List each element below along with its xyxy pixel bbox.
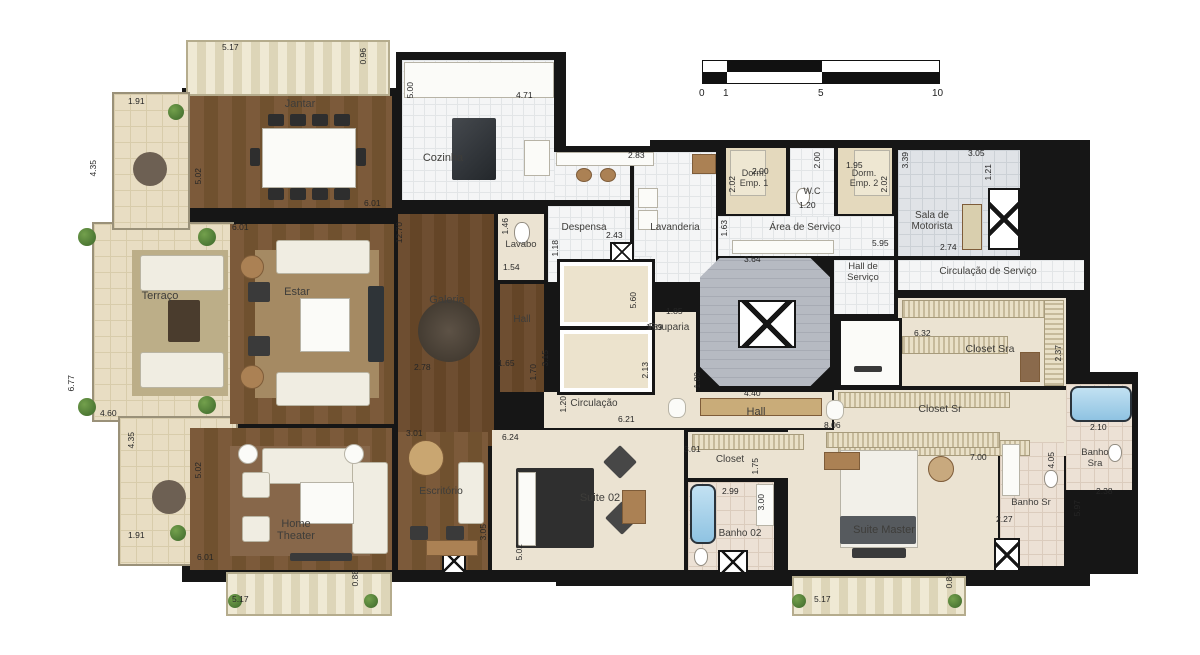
- scale-tick-5: 5: [818, 88, 824, 99]
- elevator-2: [560, 330, 652, 392]
- estar-coffee-table: [300, 298, 350, 352]
- scale-bar: 0 1 5 10: [702, 60, 940, 100]
- dim-label: 12.70: [394, 222, 404, 243]
- service-elevator-door: [854, 366, 882, 372]
- ht-lamp: [238, 444, 258, 464]
- ht-tv: [290, 553, 352, 561]
- estar-sofa: [276, 240, 370, 274]
- dim-label: 2.99: [722, 486, 739, 496]
- dim-label: 5.17: [814, 594, 831, 604]
- plant: [364, 594, 378, 608]
- dim-label: 1.91: [128, 96, 145, 106]
- scale-tick-10: 10: [932, 88, 943, 99]
- room-lavanderia-label: Lavanderia: [635, 222, 715, 233]
- terrace-sofa: [140, 352, 224, 388]
- dim-label: 1.91: [128, 530, 145, 540]
- dim-label: 5.17: [222, 42, 239, 52]
- dim-label: 4.35: [126, 432, 136, 449]
- ht-lamp: [344, 444, 364, 464]
- elevator-1: [560, 262, 652, 326]
- escritorio-chair: [446, 526, 464, 540]
- duct-despensa: [610, 242, 634, 262]
- escritorio-chair: [410, 526, 428, 540]
- dining-table: [262, 128, 356, 188]
- room-area-servico-label: Área de Serviço: [750, 222, 860, 233]
- room-hall-servico-label: Hall de Serviço: [844, 262, 882, 283]
- dim-label: 1.89: [646, 322, 663, 332]
- dim-label: 1.20: [799, 200, 816, 210]
- room-jantar-label: Jantar: [250, 98, 350, 110]
- dim-label: 5.95: [872, 238, 889, 248]
- dining-chair: [268, 188, 284, 200]
- dim-label: 3.00: [756, 494, 766, 511]
- suite-master-dresser: [824, 452, 860, 470]
- dim-label: 2.38: [1096, 486, 1113, 496]
- hall-stool: [826, 400, 844, 420]
- dim-label: 7.00: [970, 452, 987, 462]
- dim-label: 2.13: [640, 362, 650, 379]
- duct-suite-master: [994, 538, 1020, 572]
- plant: [198, 228, 216, 246]
- dim-label: 1.63: [719, 220, 729, 237]
- room-banho-sr-label: Banho Sr: [1010, 498, 1052, 509]
- room-home-theater-label: Home Theater: [268, 518, 324, 543]
- dim-label: 1.95: [846, 160, 863, 170]
- dim-label: 5.97: [1072, 500, 1082, 517]
- plant: [78, 398, 96, 416]
- banho-sr-counter: [1002, 444, 1020, 496]
- ht-sofa: [262, 448, 356, 484]
- dim-label: 2.00: [752, 166, 769, 176]
- dim-label: 6.77: [66, 375, 76, 392]
- banho-sr-toilet: [1044, 470, 1058, 488]
- ht-armchair: [242, 472, 270, 498]
- dining-chair: [334, 114, 350, 126]
- room-banho-02-label: Banho 02: [700, 528, 780, 539]
- estar-tv: [368, 286, 384, 362]
- plant: [78, 228, 96, 246]
- dim-label: 2.10: [1090, 422, 1107, 432]
- dim-label: 4.05: [1046, 452, 1056, 469]
- room-sala-motorista-label: Sala de Motorista: [896, 210, 968, 232]
- hall-stool: [668, 398, 686, 418]
- room-banho-sra-label: Banho Sra: [1074, 448, 1116, 469]
- plant: [198, 396, 216, 414]
- dim-label: 3.05: [968, 148, 985, 158]
- room-hall-intimo-label: Hall: [730, 406, 782, 418]
- escritorio-round-table: [408, 440, 444, 476]
- dining-chair: [268, 114, 284, 126]
- dining-chair: [356, 148, 366, 166]
- wardrobe-suite-master: [826, 432, 1000, 448]
- room-lavabo-label: Lavabo: [496, 240, 546, 251]
- dim-label: 2.74: [940, 242, 957, 252]
- dim-label: 2.27: [996, 514, 1013, 524]
- dim-label: 1.80: [692, 372, 702, 389]
- suite02-pillows: [518, 472, 536, 546]
- suite-master-bench: [852, 548, 906, 558]
- dim-label: 0.96: [358, 48, 368, 65]
- duct-banho02: [718, 550, 748, 574]
- scale-tick-0: 0: [699, 88, 705, 99]
- room-wc-label: W.C: [792, 186, 832, 196]
- terrace-round-table: [152, 480, 186, 514]
- floor-plan: Jantar Cozinha Terraço Estar Galeria Lav…: [0, 0, 1200, 655]
- scale-ticks: 0 1 5 10: [702, 84, 940, 100]
- room-hall-elevadores-label: Hall: [500, 314, 544, 325]
- dim-label: 4.35: [88, 160, 98, 177]
- wardrobe-closet-sra-top: [902, 300, 1064, 318]
- service-counter: [732, 240, 834, 254]
- dim-label: 4.40: [744, 388, 761, 398]
- laundry-cabinet: [692, 154, 716, 174]
- dim-label: 1.75: [750, 458, 760, 475]
- ht-sofa: [352, 462, 388, 554]
- dim-label: 3.05: [478, 524, 488, 541]
- room-cozinha-label: Cozinha: [408, 152, 478, 164]
- room-terraco-label: Terraço: [120, 290, 200, 302]
- dim-label: 3.64: [744, 254, 761, 264]
- dim-label: 1.85: [666, 306, 683, 316]
- dim-label: 6.32: [914, 328, 931, 338]
- scale-segment: [703, 61, 727, 72]
- dining-chair: [290, 114, 306, 126]
- room-suite-master-label: Suite Master: [834, 524, 934, 536]
- bathtub-banho-sra: [1070, 386, 1132, 422]
- stair-motorista: [988, 188, 1020, 250]
- plant: [948, 594, 962, 608]
- kitchen-fridge: [524, 140, 550, 176]
- room-escritorio-label: Escritório: [402, 486, 480, 498]
- dining-chair: [312, 114, 328, 126]
- dim-label: 4.60: [100, 408, 117, 418]
- room-closet-sra-label: Closet Sra: [950, 344, 1030, 356]
- scale-segment: [822, 72, 939, 83]
- dim-label: 2.02: [879, 176, 889, 193]
- dim-label: 3.01: [684, 444, 701, 454]
- terrace-round-table: [133, 152, 167, 186]
- estar-side-table: [240, 365, 264, 389]
- washer: [638, 188, 658, 208]
- dim-label: 2.37: [1053, 345, 1063, 362]
- breakfast-stool: [600, 168, 616, 182]
- scale-segment: [703, 72, 727, 83]
- terrace-coffee-table: [168, 300, 200, 342]
- dim-label: 1.65: [498, 358, 515, 368]
- dining-chair: [250, 148, 260, 166]
- scale-segment: [727, 61, 822, 72]
- room-estar-label: Estar: [262, 286, 332, 298]
- dim-label: 8.06: [824, 420, 841, 430]
- dining-chair: [312, 188, 328, 200]
- dim-label: 6.24: [502, 432, 519, 442]
- dim-label: 2.02: [727, 176, 737, 193]
- dim-label: 5.02: [514, 544, 524, 561]
- dim-label: 6.21: [618, 414, 635, 424]
- dim-label: 3.39: [900, 152, 910, 169]
- dim-label: 5.60: [628, 292, 638, 309]
- plant: [792, 594, 806, 608]
- wardrobe-closet02: [692, 434, 804, 450]
- banho02-toilet: [694, 548, 708, 566]
- room-closet-sr-label: Closet Sr: [900, 404, 980, 416]
- dim-label: 6.01: [232, 222, 249, 232]
- dim-label: 5.02: [193, 462, 203, 479]
- dim-label: 5.17: [232, 594, 249, 604]
- escritorio-desk: [426, 540, 478, 556]
- service-elevator: [838, 318, 902, 388]
- wardrobe-closet-sra-right: [1044, 300, 1064, 386]
- dim-label: 2.00: [812, 152, 822, 169]
- room-galeria-label: Galeria: [412, 294, 482, 306]
- dim-label: 1.21: [983, 164, 993, 181]
- plant: [168, 104, 184, 120]
- dim-label: 2.83: [628, 150, 645, 160]
- ht-armchair: [242, 516, 270, 542]
- dim-label: 0.86: [944, 572, 954, 589]
- suite-master-pouf: [928, 456, 954, 482]
- elevator-shaft-center: [738, 300, 796, 348]
- kitchen-island: [452, 118, 496, 180]
- breakfast-stool: [576, 168, 592, 182]
- dim-label: 3.15: [540, 350, 550, 367]
- dim-label: 3.01: [406, 428, 423, 438]
- galeria-rug: [418, 300, 480, 362]
- dim-label: 2.43: [606, 230, 623, 240]
- estar-sofa: [276, 372, 370, 406]
- dim-label: 1.46: [500, 218, 510, 235]
- dining-chair: [334, 188, 350, 200]
- terrace-sofa: [140, 255, 224, 291]
- dim-label: 0.88: [350, 570, 360, 587]
- scale-segment: [727, 72, 822, 83]
- estar-side-table: [240, 255, 264, 279]
- closet-island: [1020, 352, 1040, 382]
- dim-label: 5.00: [405, 82, 415, 99]
- scale-tick-1: 1: [723, 88, 729, 99]
- dim-label: 1.70: [528, 364, 538, 381]
- room-circulacao-servico-label: Circulação de Serviço: [908, 266, 1068, 277]
- dining-chair: [290, 188, 306, 200]
- room-suite-02-label: Suite 02: [560, 492, 640, 504]
- scale-bar-segments: [702, 60, 940, 84]
- dim-label: 1.18: [550, 240, 560, 257]
- dim-label: 4.71: [516, 90, 533, 100]
- dim-label: 2.78: [414, 362, 431, 372]
- dim-label: 1.20: [558, 396, 568, 413]
- dim-label: 6.01: [364, 198, 381, 208]
- estar-armchair: [248, 336, 270, 356]
- dim-label: 6.01: [197, 552, 214, 562]
- dim-label: 5.02: [193, 168, 203, 185]
- plant: [170, 525, 186, 541]
- scale-segment: [822, 61, 939, 72]
- dim-label: 1.54: [503, 262, 520, 272]
